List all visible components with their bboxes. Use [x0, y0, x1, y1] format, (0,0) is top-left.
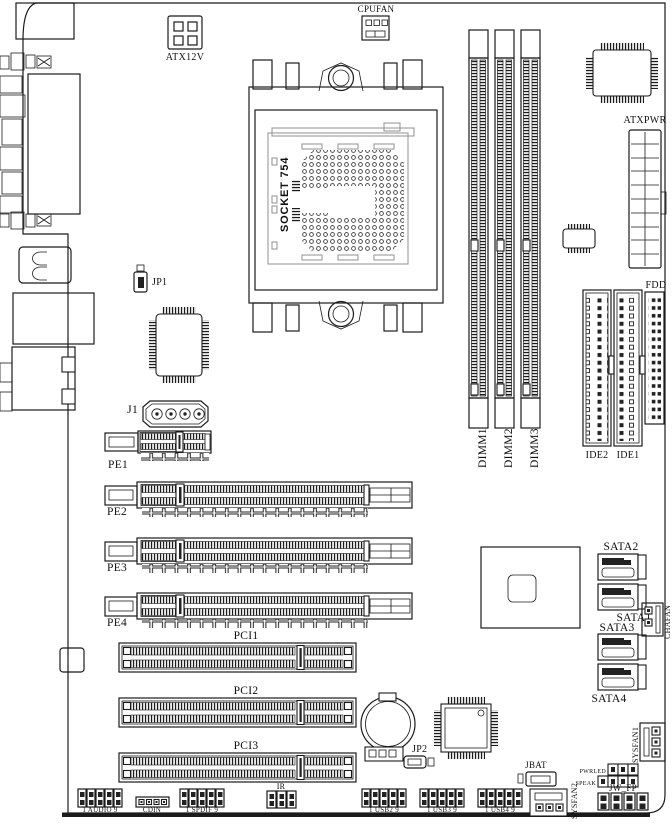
cpu-socket: SOCKET 754: [249, 60, 443, 332]
clock-chip: [563, 224, 595, 253]
dimm-slot-3: [521, 30, 540, 428]
socket-label: SOCKET 754: [279, 157, 291, 232]
atx12v-label: ATX12V: [166, 52, 205, 63]
sata4-label: SATA4: [591, 693, 626, 705]
sata3-label: SATA3: [599, 622, 634, 634]
board-svg: ATX12V CPUFAN SOCKET 754 DIMM1 DIMM2: [0, 0, 672, 824]
sata2-label: SATA2: [603, 541, 638, 553]
sysfan2-label: SYSFAN2: [570, 783, 579, 819]
audio-label: 1 AUDIO 9: [82, 806, 118, 814]
dimm-slot-1: [469, 30, 488, 428]
sata3-connector: [598, 634, 646, 660]
jp2-label: JP2: [412, 744, 427, 755]
sysfan1-label: SYSFAN1: [631, 727, 640, 763]
ir-header: [267, 791, 296, 808]
pe2-label: PE2: [107, 506, 127, 518]
atxpwr-label: ATXPWR: [624, 115, 667, 126]
pwrled-label: PWRLED: [580, 769, 607, 775]
jp2-jumper: [404, 756, 434, 768]
jwfp-label: JW_FP: [609, 783, 637, 793]
super-io-chip: [434, 697, 498, 759]
dimm3-label: DIMM3: [529, 428, 541, 468]
pci1-slot: [119, 643, 356, 672]
jp1-jumper: [134, 265, 147, 292]
usb4-label: 1 USB4 9: [485, 806, 515, 814]
motherboard-diagram: ATX12V CPUFAN SOCKET 754 DIMM1 DIMM2: [0, 0, 672, 824]
io-audio-block: [0, 347, 75, 411]
dimm1-label: DIMM1: [477, 428, 489, 468]
board-outline: [23, 3, 665, 817]
jbat-label: JBAT: [525, 760, 547, 770]
ide1-label: IDE1: [617, 450, 640, 461]
usb3-header: [420, 789, 464, 807]
cdin-label: CDIN: [143, 806, 161, 814]
io-port-stack: [0, 76, 25, 213]
fdd-label: FDD: [646, 280, 667, 291]
cpufan-label: CPUFAN: [358, 4, 395, 14]
voltage-regulator: [60, 648, 84, 672]
atx12v-connector: [168, 16, 202, 49]
io-screw-top: [0, 53, 51, 70]
ide1-connector: [614, 290, 645, 446]
chafan-connector: [642, 603, 663, 636]
jwfp-header: [598, 793, 648, 810]
sata4-connector: [598, 664, 646, 690]
ir-label: IR: [277, 782, 286, 791]
j1-power-connector: [143, 401, 208, 427]
io-lan-block: [13, 293, 94, 344]
audio-header: [78, 789, 122, 807]
pe4-slot: [105, 593, 412, 628]
sysfan2-connector: [530, 789, 567, 816]
jbat-jumper: [518, 772, 556, 786]
usb3-label: 1 USB3 9: [427, 806, 457, 814]
pci3-label: PCI3: [234, 740, 259, 752]
socket-body: SOCKET 754: [268, 123, 414, 264]
pci3-slot: [119, 753, 356, 782]
sata2-connector: [598, 554, 646, 580]
sata1-connector: [598, 584, 646, 610]
cpufan-connector: [362, 16, 389, 40]
sysfan1-connector: [640, 723, 665, 761]
usb2-header: [362, 789, 406, 807]
pe1-label: PE1: [108, 459, 128, 471]
jp1-label: JP1: [152, 277, 167, 288]
spdif-header: [180, 789, 224, 807]
pci2-slot: [119, 698, 356, 727]
pe2-slot: [105, 482, 412, 517]
rear-io-panel: [0, 3, 94, 411]
dimm2-label: DIMM2: [503, 428, 515, 468]
fdd-connector: [645, 292, 664, 424]
pe1-slot: [105, 431, 211, 461]
pe3-slot: [105, 538, 412, 573]
atxpwr-connector: [629, 130, 666, 268]
pe4-label: PE4: [107, 617, 127, 629]
io-usb-block: [19, 247, 71, 283]
pe3-label: PE3: [107, 562, 127, 574]
io-controller-chip: [586, 43, 658, 103]
lan-controller-chip: [149, 307, 209, 383]
io-parallel-port: [28, 74, 80, 214]
pci1-label: PCI1: [234, 630, 259, 642]
chipset: [481, 547, 580, 628]
spdif-label: 1 SPDIF 9: [186, 806, 218, 814]
usb2-label: 1 USB2 9: [369, 806, 399, 814]
ide2-connector: [583, 290, 614, 446]
cmos-battery: [361, 693, 415, 761]
pci2-label: PCI2: [234, 685, 259, 697]
chafan-label: CHAFAN: [663, 605, 672, 639]
usb4-header: [478, 789, 522, 807]
j1-label: J1: [127, 404, 138, 416]
ide2-label: IDE2: [586, 450, 609, 461]
dimm-slot-2: [495, 30, 514, 428]
